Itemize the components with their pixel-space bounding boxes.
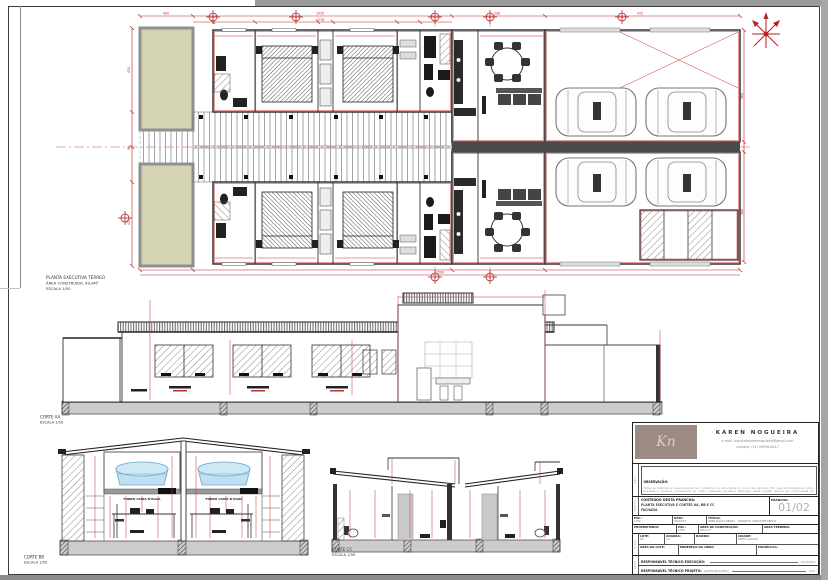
observation-section: OBS. OBSERVAÇÃO: Todas as medidas e níve… xyxy=(633,463,818,496)
svg-text:560: 560 xyxy=(740,209,744,215)
svg-text:CORTE CC: CORTE CC xyxy=(332,547,352,552)
svg-text:415: 415 xyxy=(127,219,131,225)
bath-fixture xyxy=(216,56,226,71)
plan-unit xyxy=(140,28,740,146)
architect-logo: Kn xyxy=(635,425,697,459)
fridge xyxy=(417,368,431,400)
north-compass-icon xyxy=(752,12,780,48)
title-block-header: Kn KAREN NOGUEIRA e-mail: arquitetakaren… xyxy=(633,423,818,463)
svg-text:PLANTA EXECUTIVA TÉRREO: PLANTA EXECUTIVA TÉRREO xyxy=(46,275,106,280)
block-value: 12 xyxy=(666,538,693,541)
content-section: DADOS CONTEÚDO DESTA PRANCHA: PLANTA EXE… xyxy=(633,496,818,515)
door xyxy=(398,494,413,540)
section-aa-caption: CORTE AA ESCALA 1/50 xyxy=(40,415,64,425)
svg-text:CORTE BB: CORTE BB xyxy=(24,555,44,560)
contact-email: e-mail: arquitetakarennogueira@gmail.com xyxy=(699,439,816,443)
svg-text:ESCALA 1/50: ESCALA 1/50 xyxy=(46,286,71,291)
svg-text:ESCALA 1/50: ESCALA 1/50 xyxy=(24,561,48,565)
svg-text:415: 415 xyxy=(127,67,131,73)
section-cc: CORTE CC ESCALA 1/50 xyxy=(330,458,563,557)
svg-text:298: 298 xyxy=(494,12,500,16)
resp-execution-registry: CAU/CREA: xyxy=(801,560,816,564)
observation-label: OBSERVAÇÃO: xyxy=(644,480,669,484)
svg-text:ESCALA 1/50: ESCALA 1/50 xyxy=(40,421,64,425)
scale-date-title-row: ESC.: 1/50 DATA: 05/2023 TÍTULO: AMPLIAÇ… xyxy=(633,515,818,524)
title-value: AMPLIAÇÃO RESID. - PROJETO ARQUITETÔNICO xyxy=(708,520,817,523)
signature-line xyxy=(710,561,797,563)
plan-caption: PLANTA EXECUTIVA TÉRREO ÁREA CONSTRUÍDA:… xyxy=(46,275,106,291)
resp-project-label: RESPONSÁVEL TÉCNICO PROJETO: xyxy=(641,569,702,573)
title-block: Kn KAREN NOGUEIRA e-mail: arquitetakaren… xyxy=(632,422,819,575)
svg-text:90: 90 xyxy=(127,146,131,150)
yard-wall xyxy=(63,338,120,402)
svg-text:415: 415 xyxy=(637,12,643,16)
lot-size-label: ÁREA DO LOTE: xyxy=(640,546,677,549)
sofa xyxy=(496,88,542,93)
svg-text:ÁREA CONSTRUÍDA: 99,9M²: ÁREA CONSTRUÍDA: 99,9M² xyxy=(46,281,99,286)
section-bb-caption: CORTE BB ESCALA 1/50 xyxy=(24,555,48,565)
section-bb: FORRO CAIXA D'ÁGUA FORRO CAIXA D'ÁGUA xyxy=(24,438,310,565)
sheet-content-label: CONTEÚDO DESTA PRANCHA: xyxy=(641,498,767,502)
elevation-windows xyxy=(155,345,396,377)
city-value: SETE LAGOAS xyxy=(738,538,817,541)
sheet-content-line: FACHADA xyxy=(641,508,767,512)
sheet-number-value: 01/02 xyxy=(770,501,818,514)
svg-text:1035: 1035 xyxy=(316,12,324,16)
registry-label: MATRÍCULA: xyxy=(758,546,817,549)
bed xyxy=(262,46,312,102)
bed xyxy=(343,46,393,102)
owner-area-row: PROPRIETÁRIO: ESC.: 1/50 ÁREA DE CONSTRU… xyxy=(633,524,818,533)
car xyxy=(646,88,726,136)
ground-slab xyxy=(62,402,662,414)
section-aa: CORTE AA ESCALA 1/50 xyxy=(40,290,662,425)
scale2-value: 1/50 xyxy=(678,529,697,532)
resp-project-registry: CAU: xyxy=(809,569,816,573)
toilet xyxy=(338,518,358,540)
garage-elevation xyxy=(545,345,660,402)
resp-execution-label: RESPONSÁVEL TÉCNICO EXECUÇÃO: xyxy=(641,560,705,564)
built-area-value: 99,9 m² xyxy=(700,529,761,532)
tank-label: FORRO CAIXA D'ÁGUA xyxy=(206,496,244,501)
svg-text:ESCALA 1/50: ESCALA 1/50 xyxy=(332,553,356,557)
toilet xyxy=(535,526,549,537)
car xyxy=(556,88,636,136)
deck-area xyxy=(193,112,452,146)
contact-phone: contato: (31) 99938-6017 xyxy=(699,445,816,449)
water-tank xyxy=(116,462,168,485)
floor-plan: 420 1035 298 415 1278 2590 415 90 415 56… xyxy=(46,10,750,291)
svg-text:CORTE AA: CORTE AA xyxy=(40,415,61,420)
garden-area xyxy=(140,28,193,130)
date-value: 05/2023 xyxy=(674,520,705,523)
svg-text:420: 420 xyxy=(163,12,169,16)
resp-project-name: KAREN NOGUEIRA xyxy=(704,569,729,573)
roof xyxy=(333,471,560,487)
owner-label: PROPRIETÁRIO: xyxy=(634,526,675,529)
water-tank xyxy=(198,462,250,485)
drawing-sheet: 420 1035 298 415 1278 2590 415 90 415 56… xyxy=(0,0,828,580)
signature-line xyxy=(732,570,806,572)
architect-name: KAREN NOGUEIRA xyxy=(699,430,816,436)
svg-text:560: 560 xyxy=(740,93,744,99)
observation-text: Todas as medidas e níveis deverão ser co… xyxy=(644,487,814,495)
storage-rooms xyxy=(640,210,738,260)
scale-value: 1/50 xyxy=(634,520,671,523)
party-wall xyxy=(452,142,740,152)
lot-area-label: ÁREA TERRENO: xyxy=(764,526,817,529)
district-label: BAIRRO: xyxy=(696,535,735,538)
sheet-number-cell: PRANCHA: 01/02 xyxy=(769,497,818,515)
door xyxy=(482,494,497,540)
location-section: LOCAL LOTE: 05 QUADRA: 12 BAIRRO: xyxy=(633,533,818,555)
ground-slab xyxy=(332,540,560,552)
responsibles-section: RESP. RESPONSÁVEL TÉCNICO EXECUÇÃO: CAU/… xyxy=(633,555,818,574)
section-strip: OBS. xyxy=(633,464,639,496)
sheet-content-line: PLANTA EXECUTIVA E CORTES AA, BB E CC xyxy=(641,503,767,507)
work-address-label: ENDEREÇO DA OBRA: xyxy=(680,546,755,549)
svg-text:1278: 1278 xyxy=(316,18,324,22)
kitchen-counter xyxy=(454,40,463,104)
logo-initials: Kn xyxy=(656,434,675,450)
tank-label: FORRO CAIXA D'ÁGUA xyxy=(124,496,162,501)
lot-value: 05 xyxy=(640,538,663,541)
